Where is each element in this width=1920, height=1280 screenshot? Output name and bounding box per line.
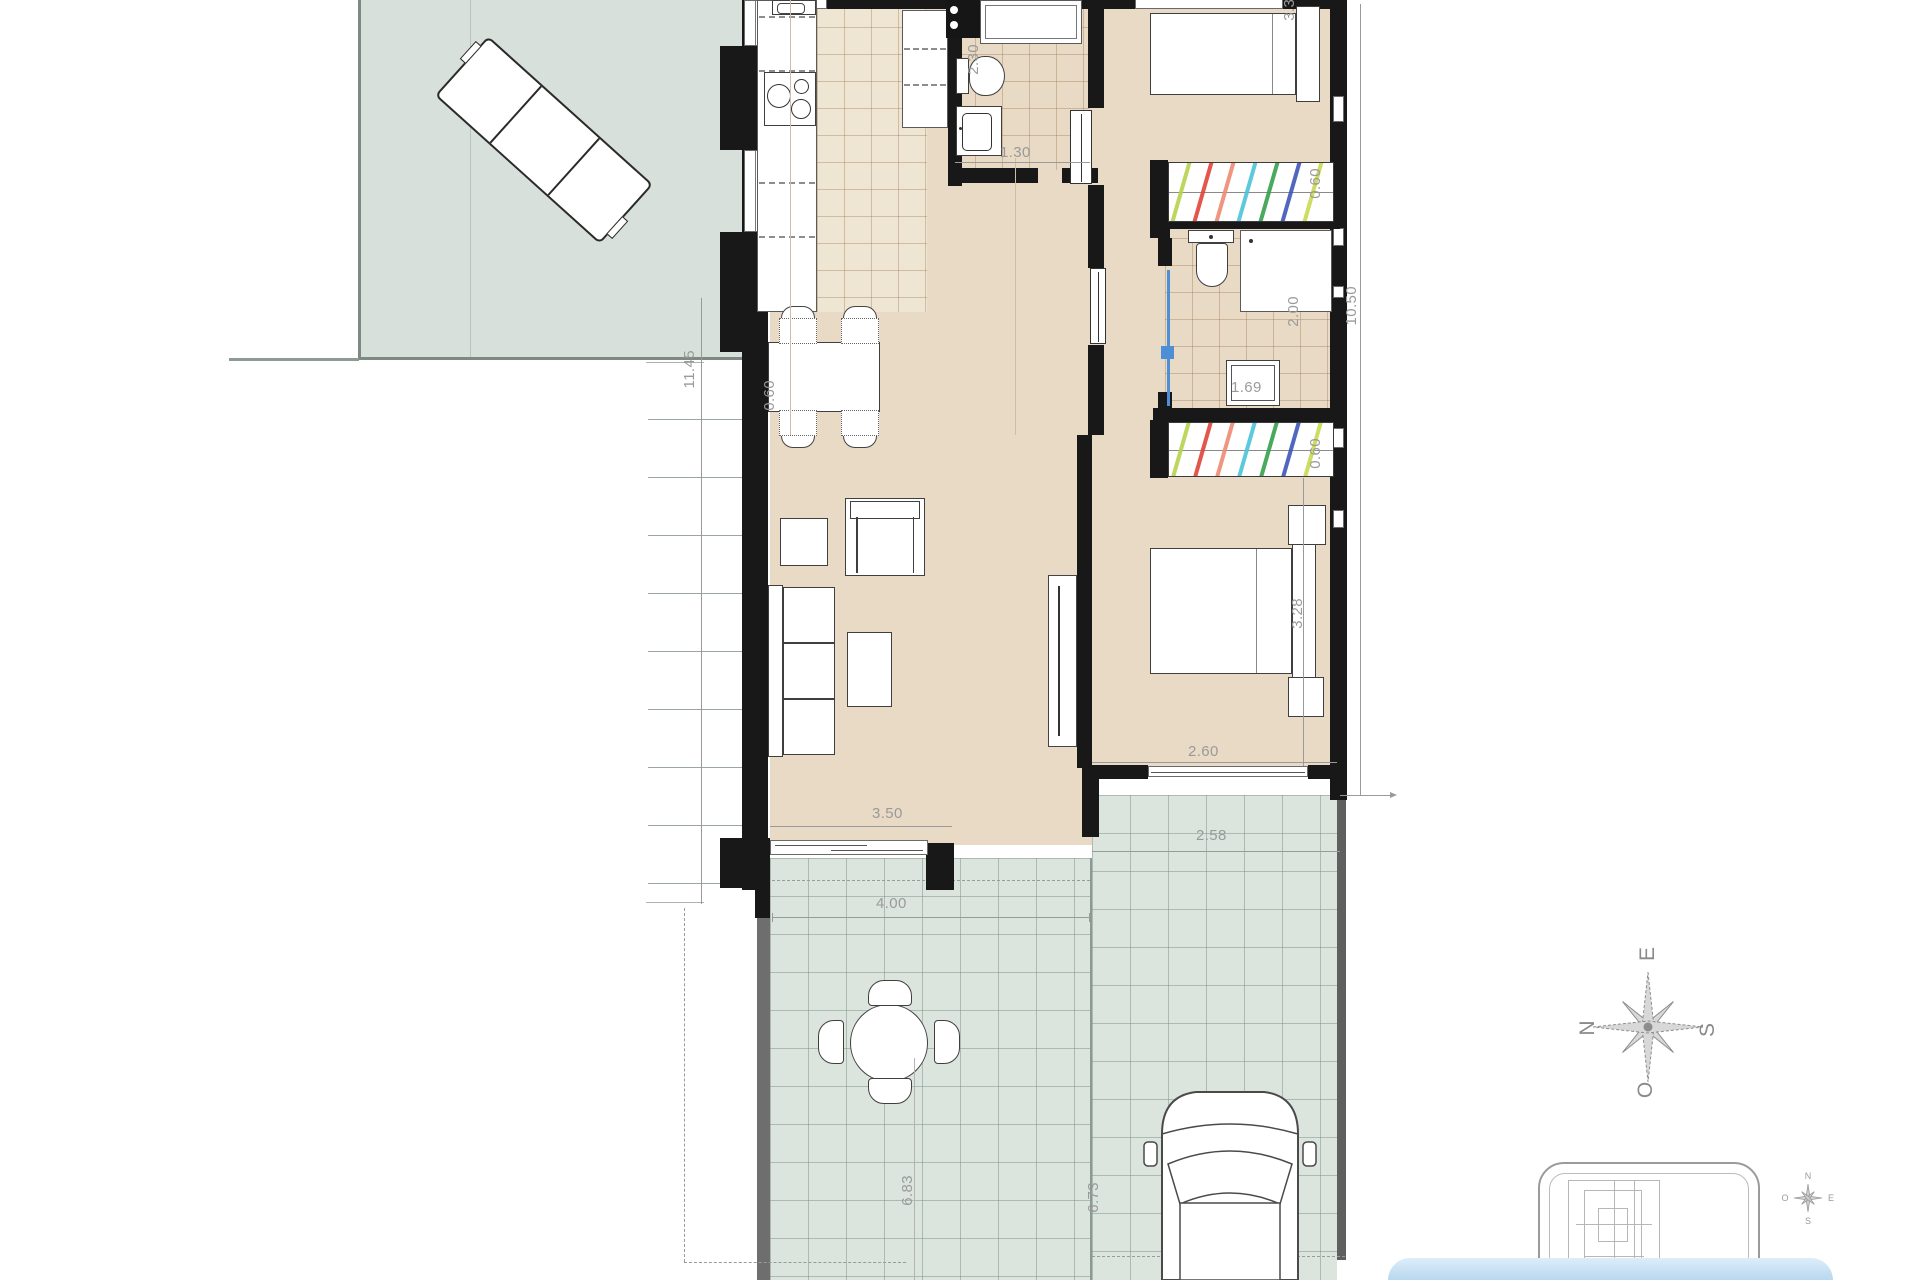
- compass-east-label: E: [1636, 947, 1660, 961]
- compass-north-label: N: [1576, 1020, 1600, 1035]
- bed2-headboard: [1296, 6, 1320, 102]
- dimline-1-30: [955, 162, 1090, 163]
- dim-11-45: 11.45: [682, 350, 697, 388]
- side-patio-pergola: [648, 362, 756, 905]
- window-right-slit-5: [1333, 510, 1344, 528]
- bathroom1-sink: [956, 106, 1002, 156]
- sofa: [768, 585, 838, 757]
- dimline-2-58-extension: [1340, 795, 1392, 796]
- dim-6-83: 6.83: [900, 1175, 915, 1206]
- dining-chair-1: [779, 318, 817, 344]
- compass-star-icon: [1582, 961, 1714, 1093]
- dimline-2-58: [1092, 851, 1340, 852]
- lower-terrace-left: [770, 858, 1092, 1280]
- inset-compass-e: E: [1828, 1193, 1834, 1203]
- wall-bath1-bottom: [948, 168, 1038, 183]
- kitchen-cabinet-line-3: [759, 182, 815, 184]
- dim-2-00: 2.00: [1286, 296, 1301, 327]
- wall-left-block-lower: [720, 232, 744, 352]
- compass-rose: E N S O: [1560, 940, 1740, 1120]
- wall-bedroom1-bottom-pier: [1308, 765, 1338, 779]
- window-right-slit-4: [1333, 428, 1344, 448]
- inset-compass-o: O: [1781, 1193, 1788, 1203]
- dimline-4-00: [772, 917, 1090, 918]
- terrace-divider-line: [1090, 858, 1092, 1280]
- wall-hall-seg3: [1088, 345, 1104, 435]
- window-bedroom2-top: [1135, 0, 1283, 9]
- dining-chair-2-back: [843, 306, 877, 318]
- bathroom1-vanity: [980, 0, 1082, 44]
- dimline-10-50: [1360, 4, 1361, 796]
- compass-west-label: O: [1634, 1082, 1658, 1098]
- lounge-chair: [425, 50, 665, 230]
- dim-2-58: 2.58: [1196, 828, 1227, 843]
- inset-compass-n: N: [1805, 1171, 1812, 1181]
- dim-3-28: 3.28: [1290, 598, 1305, 629]
- dimline-2-60: [1092, 762, 1337, 763]
- kitchen-counter-right: [902, 10, 948, 128]
- inset-compass-s: S: [1805, 1216, 1811, 1226]
- dim-0-60-wardrobe-bottom: 0.60: [1308, 438, 1323, 469]
- bed1: [1150, 548, 1292, 674]
- dimline-11-45: [701, 298, 702, 904]
- armchair: [845, 498, 925, 576]
- dim-3-50: 3.50: [872, 806, 903, 821]
- wall-bath2-bottom: [1153, 408, 1340, 422]
- dining-table: [768, 342, 880, 412]
- wardrobe1-end-block: [1150, 160, 1168, 222]
- compass-south-label: S: [1696, 1023, 1720, 1037]
- toilet2-tank: [1188, 230, 1234, 243]
- patio-chair-right: [934, 1020, 960, 1064]
- window-bedroom1-bottom: [1148, 766, 1308, 777]
- car: [1128, 1082, 1332, 1280]
- kitchen-upper-cabinet-line-1: [904, 48, 946, 50]
- boundary-dashed-vertical: [684, 908, 685, 1262]
- bed2: [1150, 13, 1296, 95]
- dim-3-32: 3.32: [1282, 0, 1297, 21]
- dining-chair-3: [779, 410, 817, 436]
- dim-1-30: 1.30: [1000, 145, 1031, 160]
- washer: [946, 0, 980, 38]
- kitchen-sink: [772, 0, 816, 15]
- sliding-door-living: [770, 840, 928, 855]
- terrace-right-wall: [1337, 795, 1346, 1260]
- shower-screen-handle: [1161, 346, 1174, 359]
- dimline-4-00-tick-l: [772, 913, 773, 922]
- kitchen-cabinet-line-1: [759, 16, 815, 18]
- wall-hall-seg2: [1088, 185, 1104, 268]
- dining-chair-1-back: [781, 306, 815, 318]
- nightstand-bottom: [1288, 677, 1324, 717]
- door-leaf-bathroom2: [1090, 268, 1106, 344]
- dim-1-69: 1.69: [1231, 380, 1262, 395]
- pocket-door-bedroom1: [1048, 575, 1077, 747]
- terrace-edge-extension: [229, 358, 359, 361]
- dimline-3-50: [770, 826, 952, 827]
- dim-2-60: 2.60: [1188, 744, 1219, 759]
- wall-bath2-pier-top: [1158, 238, 1172, 266]
- water-edge: [1388, 1258, 1833, 1280]
- toilet2-bowl: [1196, 243, 1228, 287]
- window-right-slit-2: [1333, 228, 1344, 246]
- wall-left-block-upper: [720, 46, 744, 150]
- patio-chair-bottom: [868, 1078, 912, 1104]
- door-leaf-bedroom2: [1070, 110, 1092, 184]
- dining-chair-4: [841, 410, 879, 436]
- dimline-4-00-tick-r: [1089, 913, 1090, 922]
- floor-plan-canvas: 11.45 2.30 1.30 3.32 0.60 2.00 10.50 1.6…: [0, 0, 1920, 1280]
- boundary-dashed-bottom: [684, 1262, 906, 1263]
- kitchen-cabinet-line-4: [759, 236, 815, 238]
- shower-screen: [1167, 270, 1170, 406]
- nightstand-top: [1288, 505, 1326, 545]
- kitchen-upper-cabinet-line-2: [904, 84, 946, 86]
- patio-chair-left: [818, 1020, 844, 1064]
- wall-corner-down-block: [1082, 779, 1099, 837]
- dim-2-30: 2.30: [966, 44, 981, 75]
- wall-bedroom1-bottom-left: [1082, 765, 1148, 779]
- witness-line-hall: [1015, 158, 1016, 435]
- inset-compass: N E S O: [1776, 1166, 1840, 1230]
- dim-4-00: 4.00: [876, 896, 907, 911]
- kitchen-counter-left: [757, 0, 817, 312]
- window-right-slit-1: [1333, 96, 1344, 122]
- wardrobe2-end-block: [1150, 420, 1168, 478]
- wall-living-bedroom1: [1077, 435, 1092, 768]
- dimline-6-83: [914, 1058, 915, 1280]
- side-table: [780, 518, 828, 566]
- wall-living-bottom-step: [926, 843, 954, 890]
- dim-6-73: 6.73: [1086, 1182, 1101, 1213]
- patio-chair-top: [868, 980, 912, 1006]
- wall-hall-seg1: [1088, 0, 1104, 108]
- terrace-left-wall-block: [755, 888, 770, 918]
- dining-chair-2: [841, 318, 879, 344]
- witness-line-kitchen: [790, 0, 791, 435]
- patio-table: [850, 1004, 928, 1082]
- wall-living-bottom-corner: [720, 838, 770, 888]
- dim-10-50: 10.50: [1344, 286, 1359, 326]
- dim-0-60-dining: 0.60: [762, 380, 777, 411]
- inset-compass-star-icon: [1793, 1183, 1823, 1213]
- coffee-table: [847, 632, 892, 707]
- pergola-witness-bottom: [646, 902, 704, 903]
- dim-0-60-wardrobe-top: 0.60: [1308, 168, 1323, 199]
- terrace-left-wall: [757, 888, 770, 1280]
